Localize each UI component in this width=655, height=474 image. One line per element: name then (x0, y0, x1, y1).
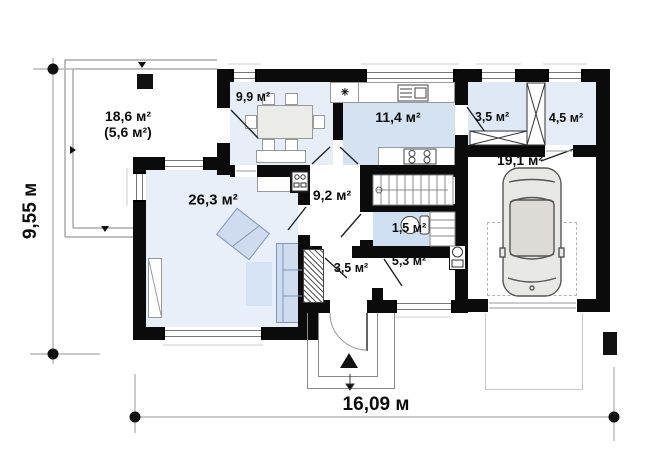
chair (245, 115, 257, 129)
floor-plan: 18,6 м² (5,6 м²) 9,9 м² 11,4 м² 3,5 м² 4… (0, 0, 655, 474)
room-label-utility: 5,3 м² (392, 254, 426, 268)
room-label-corridor: 3,5 м² (334, 261, 368, 275)
wall-wc-top (360, 204, 455, 212)
room-label-dining: 9,9 м² (236, 90, 270, 104)
door-opening-front (330, 300, 367, 313)
window (232, 69, 257, 82)
oven-column-base (290, 170, 310, 193)
counter-divider (358, 83, 359, 102)
sideboard (256, 150, 306, 163)
garage-apron (485, 313, 583, 390)
door-opening-terrace (217, 108, 230, 143)
radiator-shelves (303, 249, 324, 303)
room-label-terrace: 18,6 м² (105, 108, 151, 124)
room-label-wc: 1,5 м² (392, 221, 426, 235)
window (480, 69, 517, 82)
door-opening-hall-wc (360, 212, 373, 240)
tv-stand (148, 258, 162, 318)
wall-dining-kitchen (333, 103, 343, 140)
door-opening-hall-corridor (322, 246, 352, 258)
room-label-hall: 9,2 м² (313, 187, 351, 203)
garage-door-opening (488, 299, 577, 312)
opening-hall-top (310, 165, 360, 177)
kitchen-counter-bottom (378, 147, 455, 166)
site-marker (603, 332, 617, 355)
window (395, 300, 453, 313)
dining-table (257, 105, 313, 139)
boiler-unit (449, 245, 466, 270)
chair (285, 93, 298, 105)
door-opening-entry-garage (545, 145, 573, 157)
room-label-garage: 19,1 м² (497, 152, 543, 168)
room-label-kitchen: 11,4 м² (375, 109, 420, 125)
dimension-label-width: 16,09 м (343, 394, 410, 416)
opening-dining-living (235, 165, 257, 177)
room-label-wardrobe: 3,5 м² (475, 110, 509, 124)
parking-outline (487, 222, 577, 296)
wall-right (596, 69, 610, 312)
door-leaf-hall-wc (341, 214, 361, 237)
rug (246, 262, 272, 306)
door-opening-kitchen-wardrobe (455, 105, 468, 135)
window (163, 157, 205, 170)
chair (313, 115, 325, 129)
room-label-entry: 4,5 м² (549, 111, 583, 125)
room-label-terrace-secondary: (5,6 м²) (104, 124, 152, 140)
window (163, 327, 263, 340)
door-opening-hall-living (298, 205, 310, 235)
window (365, 69, 455, 82)
dimension-label-height: 9,55 м (20, 183, 42, 239)
boiler-mark-icon: ✳ (341, 88, 349, 99)
room-label-living: 26,3 м² (188, 192, 237, 209)
window (133, 172, 146, 202)
door-opening-corridor-utility (372, 258, 383, 288)
window (547, 69, 583, 82)
chimney (137, 74, 153, 89)
porch-outline-inner (318, 313, 378, 377)
